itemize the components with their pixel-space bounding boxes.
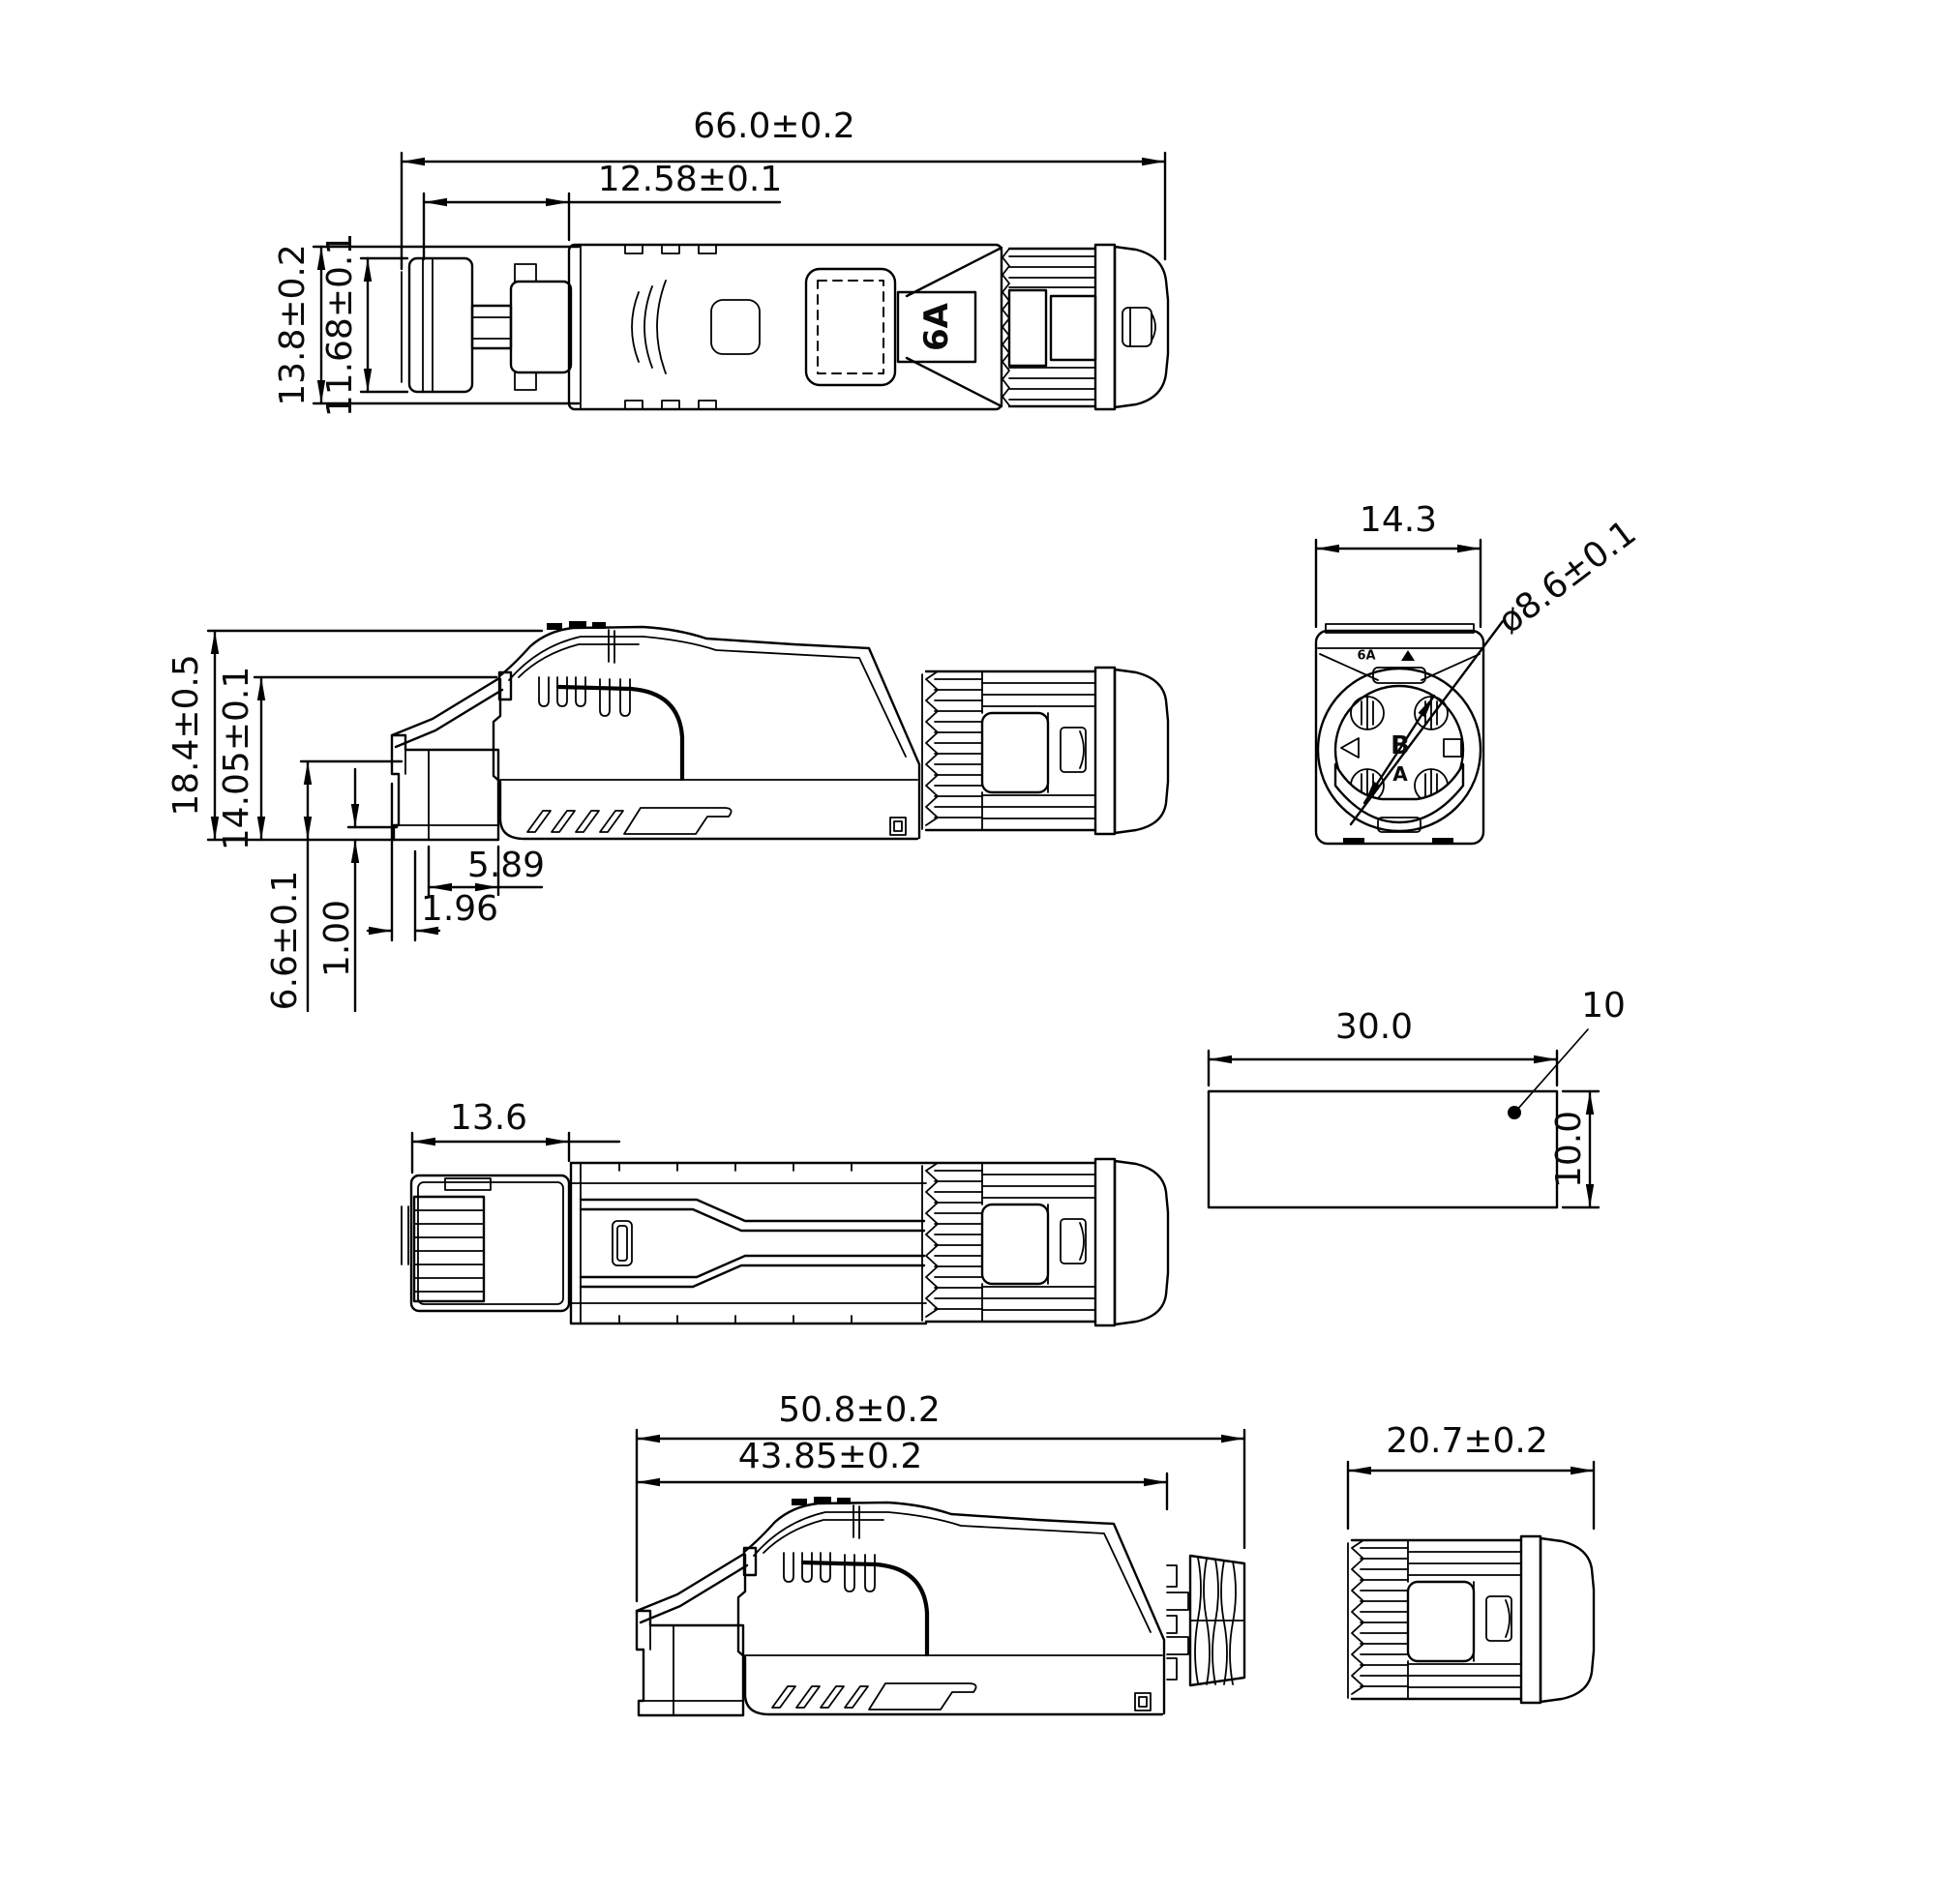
drawing-sheet: 66.0±0.2 12.58±0.1 13.8±0.2 11.68±0.1 18… (0, 0, 1945, 1904)
dim-side-body-height: 14.05±0.1 (220, 667, 254, 850)
dim-tube-length: 30.0 (1335, 1010, 1413, 1045)
cap-button (1122, 308, 1152, 346)
body-slot (613, 1221, 632, 1265)
dim-top-overall-length: 66.0±0.2 (693, 109, 855, 144)
triangle-symbol (1341, 738, 1359, 758)
dim-side-tip-offset: 1.96 (421, 892, 498, 927)
side-no-boot-dimensions (637, 1430, 1244, 1601)
threaded-collar (1167, 1556, 1244, 1685)
dim-noboot-body-length: 43.85±0.2 (738, 1440, 922, 1474)
dim-tube-callout: 10 (1581, 989, 1626, 1024)
dim-rear-width: 14.3 (1360, 503, 1437, 538)
heat-shrink-tube (1209, 1029, 1599, 1207)
dim-top-overall-width: 13.8±0.2 (276, 244, 311, 406)
plug-contacts (414, 1197, 484, 1301)
dim-side-plug-height: 6.6±0.1 (268, 871, 303, 1011)
dim-side-lip-height: 1.00 (320, 900, 355, 977)
dim-bottom-plug-length: 13.6 (450, 1101, 527, 1136)
square-symbol (1444, 739, 1461, 757)
dim-noboot-overall-length: 50.8±0.2 (778, 1393, 941, 1428)
bottom-view (402, 1133, 1168, 1325)
dim-boot-length: 20.7±0.2 (1386, 1424, 1548, 1459)
dim-top-plug-width: 11.68±0.1 (323, 233, 358, 417)
rear-view (1316, 540, 1503, 844)
boot-view-dimensions (1348, 1462, 1594, 1529)
dim-tube-height: 10.0 (1552, 1111, 1587, 1188)
marking-rear-top-6a: 6A (1357, 650, 1375, 663)
bottom-view-dimensions (412, 1133, 619, 1173)
boot-view (1348, 1462, 1594, 1703)
marking-rear-letter-a: A (1392, 764, 1407, 784)
marking-rear-letter-b: B (1391, 733, 1410, 759)
side-view-no-boot (637, 1430, 1244, 1715)
dim-side-overall-height: 18.4±0.5 (169, 654, 204, 817)
dim-top-latch-length: 12.58±0.1 (598, 163, 782, 197)
top-view-boot (1002, 245, 1168, 409)
marking-category-6a: 6A (920, 303, 953, 351)
rear-top-triangle-icon (1401, 650, 1415, 661)
tube-dimensions (1209, 1051, 1599, 1207)
side-view-dimensions (208, 631, 542, 1011)
dim-side-step-length: 5.89 (467, 848, 545, 883)
